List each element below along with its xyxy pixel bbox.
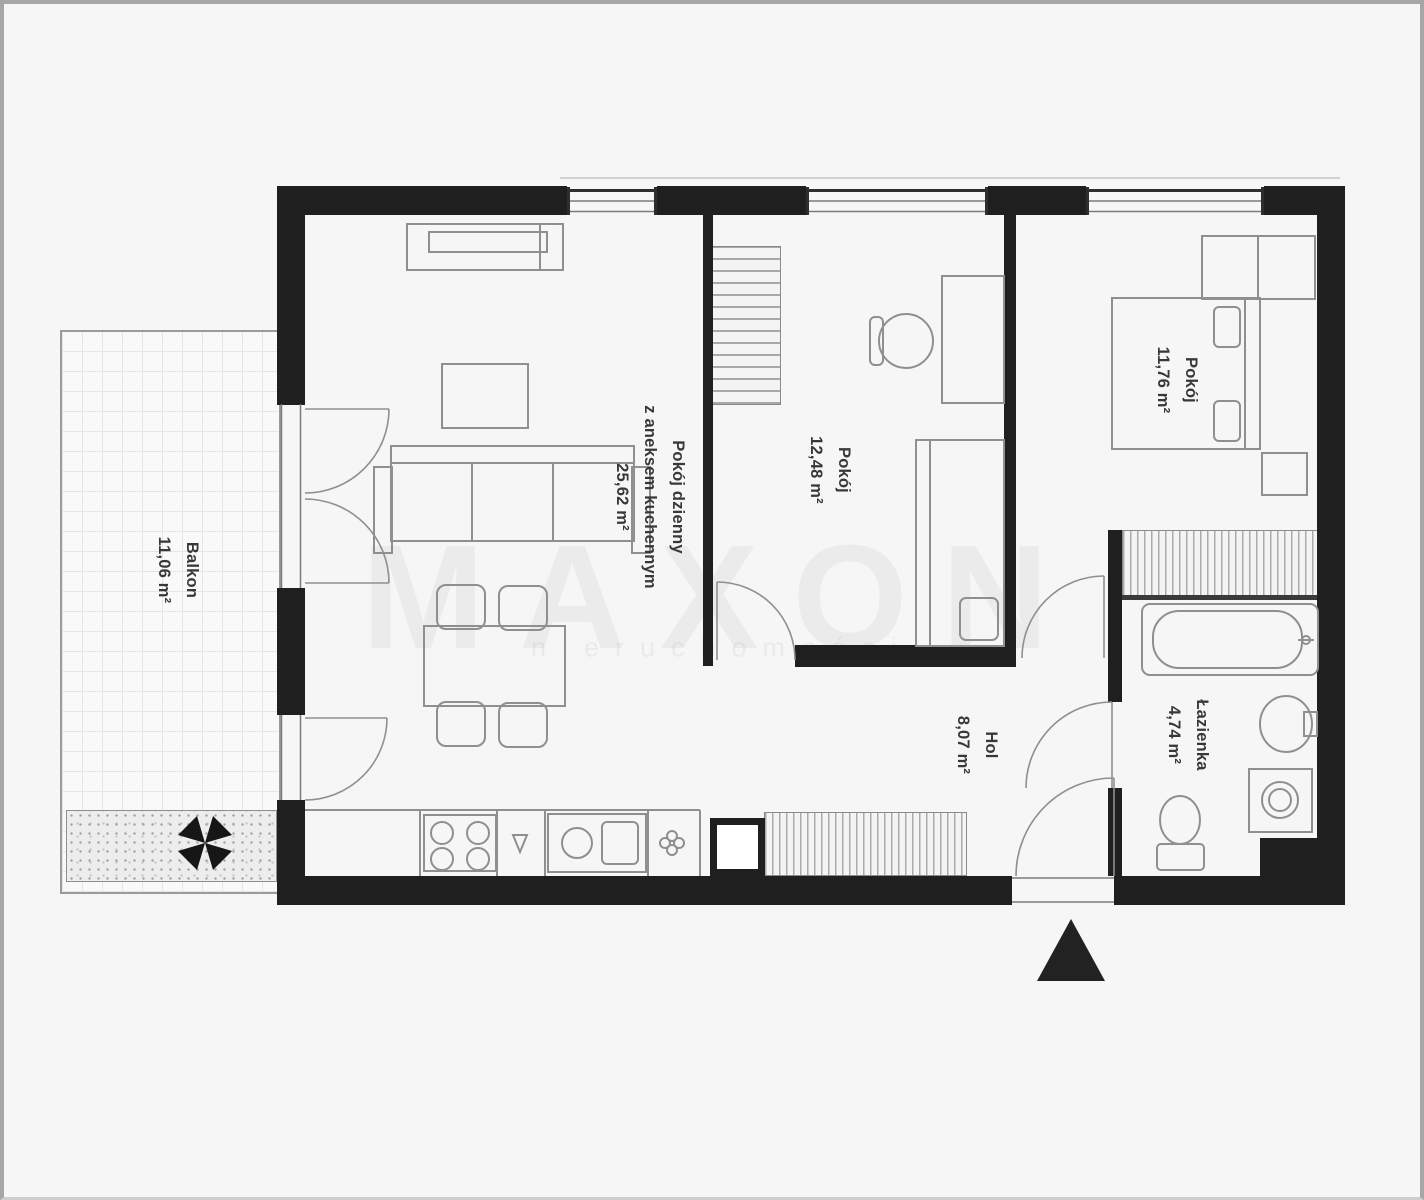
wall-left-2 — [277, 588, 305, 715]
entrance-arrow-icon — [1037, 919, 1105, 981]
nightstand — [1262, 453, 1307, 495]
balcony-single-door — [282, 715, 388, 800]
room-area: 8,07 m² — [949, 716, 977, 774]
dining-set — [424, 585, 565, 747]
bathtub — [1142, 604, 1318, 675]
single-bed — [916, 440, 1004, 646]
sink — [548, 814, 646, 872]
room-name: Pokój — [830, 436, 858, 504]
floor-plan: MAXON nieruchomości — [0, 0, 1424, 1200]
chair — [437, 585, 485, 629]
room-name: Pokój dzienny — [664, 405, 692, 589]
room-name: Pokój — [1177, 347, 1205, 414]
kitchen-counter — [305, 810, 700, 876]
faucet-icon — [513, 835, 527, 852]
pillow — [1214, 307, 1240, 347]
wall-top-1 — [277, 186, 567, 215]
room-label-room2: Pokój 12,48 m² — [802, 436, 858, 504]
room2-door — [717, 582, 795, 660]
wall-bottom-1 — [277, 876, 1012, 905]
window-room2 — [806, 187, 988, 215]
chair — [437, 702, 485, 746]
pinwheel-icon — [178, 816, 232, 870]
chair — [499, 586, 547, 630]
sideboard — [407, 224, 563, 270]
room-label-bathroom: Łazienka 4,74 m² — [1160, 699, 1216, 770]
balcony-french-door — [282, 404, 390, 588]
window-living — [567, 187, 657, 215]
chair — [499, 703, 547, 747]
wall-bottom-2 — [1114, 876, 1345, 905]
room-name-2: z aneksem kuchennym — [636, 405, 664, 589]
desk-chair — [870, 314, 933, 368]
wall-bath-stub — [1260, 838, 1317, 876]
hob-vent-icon — [660, 831, 684, 855]
room-name: Balkon — [178, 537, 206, 604]
washing-machine — [1249, 769, 1312, 832]
wall-left-3 — [277, 800, 305, 905]
wall-top-2 — [657, 186, 806, 215]
room-label-hall: Hol 8,07 m² — [949, 716, 1005, 774]
dining-table — [424, 626, 565, 706]
room-area: 4,74 m² — [1160, 699, 1188, 770]
bathroom-door — [1026, 702, 1112, 788]
room2-furniture — [870, 276, 1004, 646]
room-name: Hol — [977, 716, 1005, 774]
room-area: 11,76 m² — [1149, 347, 1177, 414]
room-area: 12,48 m² — [802, 436, 830, 504]
wall-top-3 — [988, 186, 1086, 215]
bedroom-door — [1022, 576, 1104, 658]
pillow — [1214, 401, 1240, 441]
wall-room2-bottom — [795, 645, 1016, 667]
stove — [424, 815, 496, 871]
coffee-table — [442, 364, 528, 428]
wall-room2-right — [1004, 215, 1016, 667]
interior-walls — [703, 215, 1317, 876]
room-label-bedroom: Pokój 11,76 m² — [1149, 347, 1205, 414]
wall-bath-top — [1122, 595, 1317, 600]
room-name: Łazienka — [1188, 699, 1216, 770]
wall-bath-left-upper — [1108, 530, 1122, 702]
window-bedroom — [1086, 187, 1264, 215]
closet — [1202, 236, 1315, 299]
bedroom-furniture — [1112, 236, 1315, 495]
desk — [942, 276, 1004, 403]
plan-linework — [0, 0, 1424, 1200]
wall-right — [1317, 186, 1345, 905]
toilet — [1157, 796, 1204, 870]
wall-left-1 — [277, 186, 305, 405]
entrance-door — [1012, 778, 1114, 902]
washbasin — [1260, 696, 1317, 752]
wall-bath-left-lower — [1108, 788, 1122, 876]
room-label-balcony: Balkon 11,06 m² — [150, 537, 206, 604]
room-label-living: Pokój dzienny z aneksem kuchennym 25,62 … — [608, 405, 692, 589]
room-area: 25,62 m² — [608, 405, 636, 589]
wall-living-room2 — [703, 215, 713, 666]
room-area: 11,06 m² — [150, 537, 178, 604]
